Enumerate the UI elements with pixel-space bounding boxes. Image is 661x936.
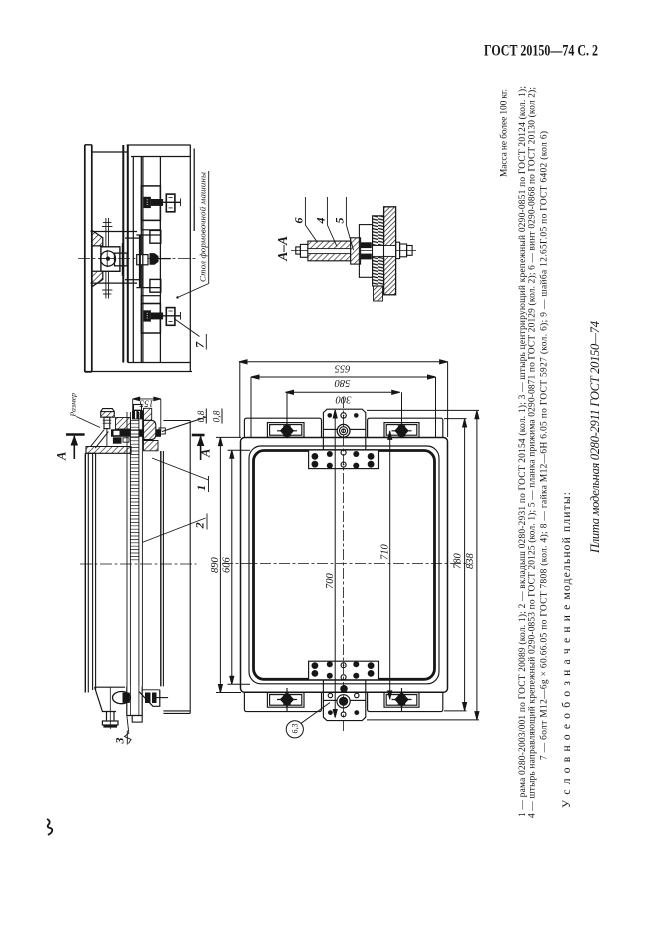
svg-text:А–А: А–А [275,236,290,262]
svg-text:580: 580 [334,377,351,388]
svg-text:838: 838 [465,553,476,570]
svg-text:710: 710 [380,544,391,561]
svg-text:ГОСТ 20150—74 С. 2: ГОСТ 20150—74 С. 2 [484,43,598,60]
svg-text:7: 7 [193,341,207,348]
svg-text:А: А [199,449,213,458]
svg-text:Плита модельная 0280-2911 ГОСТ: Плита модельная 0280-2911 ГОСТ 20150—74 [588,321,602,554]
svg-text:7 — болт М12—6g × 60.66.05 по: 7 — болт М12—6g × 60.66.05 по ГОСТ 7808 … [539,131,550,760]
svg-text:Масса не более 100 кг.: Масса не более 100 кг. [499,89,510,177]
svg-text:780: 780 [452,553,463,570]
svg-text:У с л о в н о е о б о з н а: У с л о в н о е о б о з н а ч е н и е мо… [561,492,573,808]
svg-text:5: 5 [333,218,347,224]
svg-text:Размер: Размер [69,393,78,418]
svg-text:6: 6 [292,218,306,224]
svg-text:А: А [55,452,69,461]
svg-text:Стол формовочной машины: Стол формовочной машины [198,172,208,282]
svg-text:4: 4 [314,218,328,225]
svg-text:6,3: 6,3 [291,724,300,734]
svg-text:0,8: 0,8 [213,410,223,422]
svg-text:1: 1 [194,485,208,491]
svg-text:890: 890 [210,557,221,574]
svg-text:300: 300 [335,393,353,404]
svg-text:700: 700 [325,573,336,590]
svg-text:606: 606 [222,557,233,574]
svg-text:655: 655 [335,363,351,374]
svg-text:3: 3 [113,738,127,745]
svg-text:2: 2 [193,522,207,529]
svg-text:0,8: 0,8 [197,410,207,422]
svg-text:1 — рама 0280-2003/001 по ГОСТ: 1 — рама 0280-2003/001 по ГОСТ 20089 (ко… [517,86,528,817]
svg-text:4 — штырь направляющий крепежн: 4 — штырь направляющий крепежный 0290-08… [527,87,538,818]
